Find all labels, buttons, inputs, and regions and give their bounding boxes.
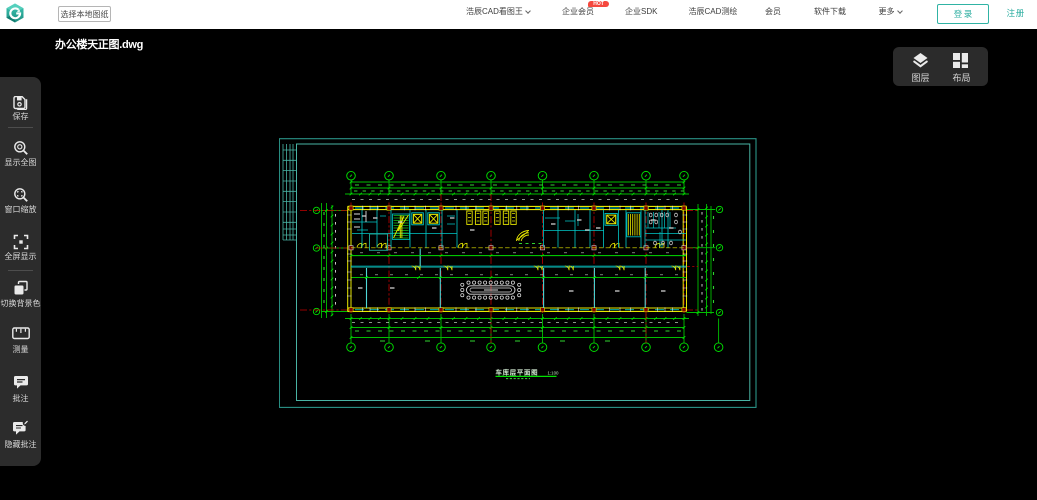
svg-text:车库层平面图: 车库层平面图 xyxy=(496,368,538,377)
svg-text:1:100: 1:100 xyxy=(548,371,560,376)
